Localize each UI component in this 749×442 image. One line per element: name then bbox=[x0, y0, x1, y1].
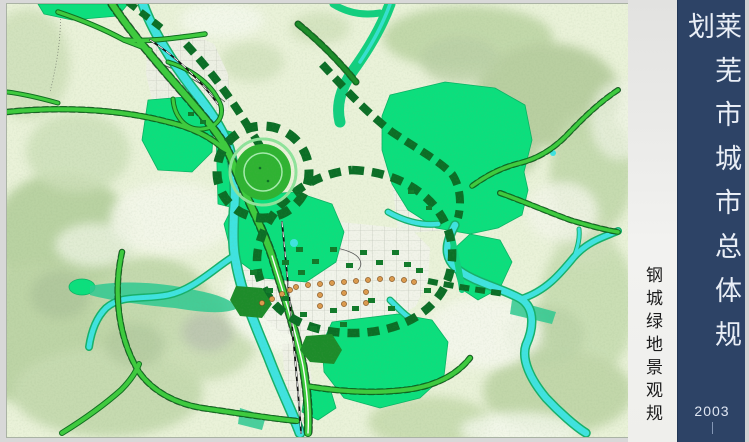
terrain-speckle-overlay bbox=[7, 4, 628, 437]
subtitle-vertical-text: 钢城绿地景观规 bbox=[644, 0, 661, 442]
year-tick-mark bbox=[712, 422, 713, 434]
title-panel: 莱芜市城市总体规划 2003 bbox=[677, 0, 746, 442]
plan-map-frame bbox=[7, 4, 628, 437]
map-image bbox=[7, 4, 628, 437]
slide-canvas: 钢城绿地景观规 莱芜市城市总体规划 2003 bbox=[0, 0, 749, 442]
plan-year: 2003 bbox=[694, 403, 729, 419]
subtitle-strip: 钢城绿地景观规 bbox=[628, 0, 677, 442]
plan-title-vertical-text: 莱芜市城市总体规划 bbox=[685, 0, 739, 403]
page-right-edge bbox=[745, 0, 749, 442]
